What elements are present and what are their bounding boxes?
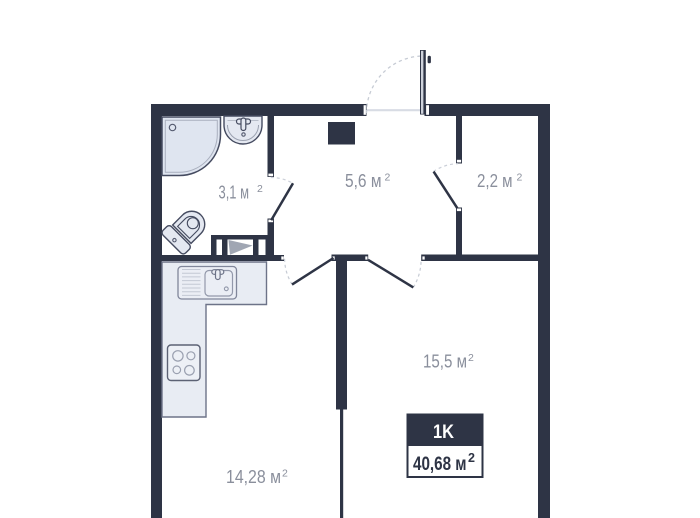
svg-text:14,28 м: 14,28 м: [226, 466, 281, 487]
svg-text:2: 2: [282, 468, 288, 480]
svg-text:2: 2: [257, 183, 263, 195]
svg-text:2,2 м: 2,2 м: [477, 170, 513, 191]
svg-text:2: 2: [468, 352, 474, 364]
svg-text:2: 2: [468, 451, 475, 465]
svg-text:2: 2: [385, 172, 391, 184]
svg-text:15,5 м: 15,5 м: [423, 351, 467, 372]
svg-text:5,6 м: 5,6 м: [345, 170, 382, 191]
svg-text:2: 2: [517, 172, 523, 184]
svg-text:1K: 1K: [433, 421, 454, 443]
svg-text:40,68 м: 40,68 м: [413, 453, 467, 475]
svg-text:3,1 м: 3,1 м: [219, 182, 250, 203]
